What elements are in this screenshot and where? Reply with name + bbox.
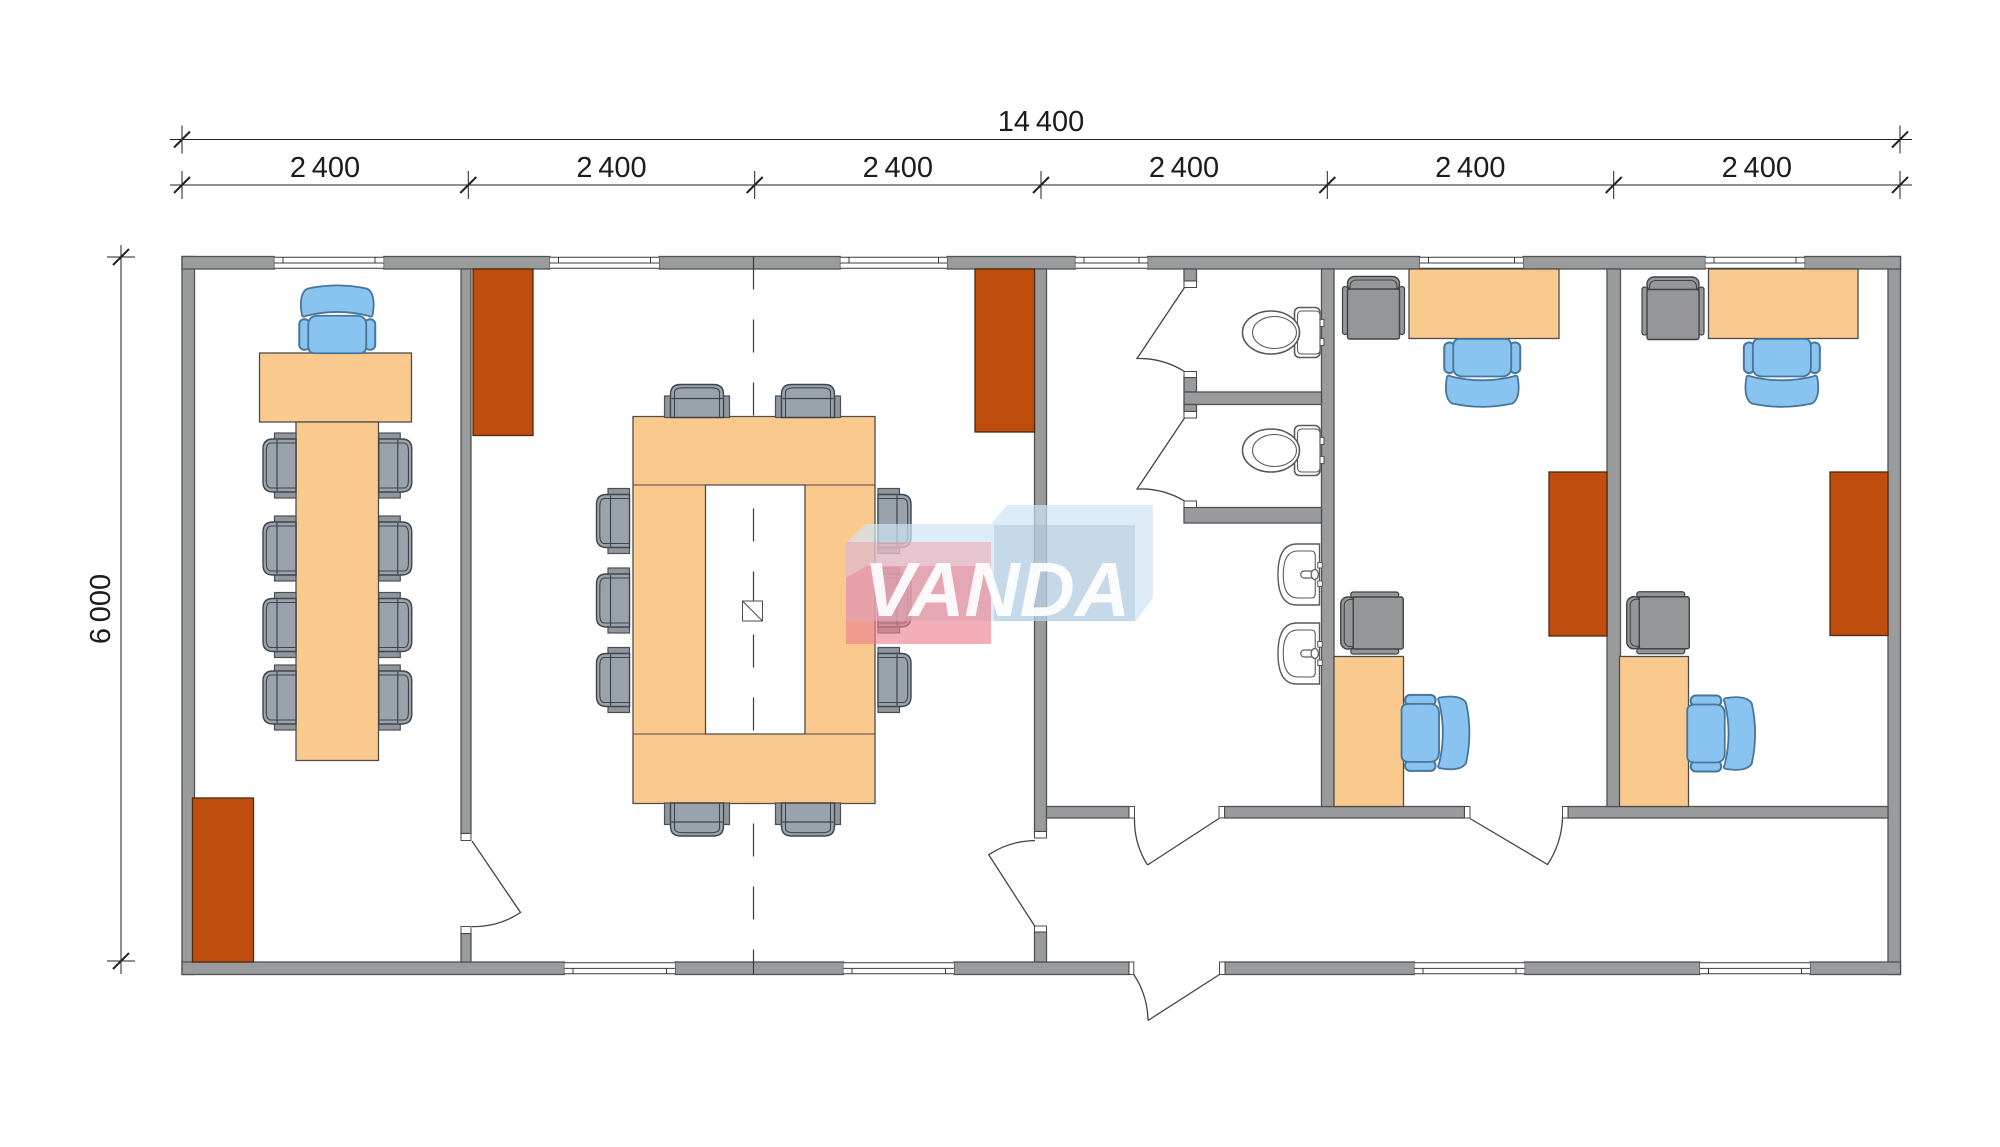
svg-text:2 400: 2 400 [1149, 152, 1219, 184]
svg-text:VANDA: VANDA [864, 547, 1130, 633]
svg-text:14 400: 14 400 [998, 106, 1084, 138]
svg-text:6 000: 6 000 [85, 574, 117, 644]
svg-text:2 400: 2 400 [1435, 152, 1505, 184]
svg-text:2 400: 2 400 [576, 152, 646, 184]
svg-text:2 400: 2 400 [863, 152, 933, 184]
svg-text:2 400: 2 400 [290, 152, 360, 184]
svg-text:2 400: 2 400 [1722, 152, 1792, 184]
